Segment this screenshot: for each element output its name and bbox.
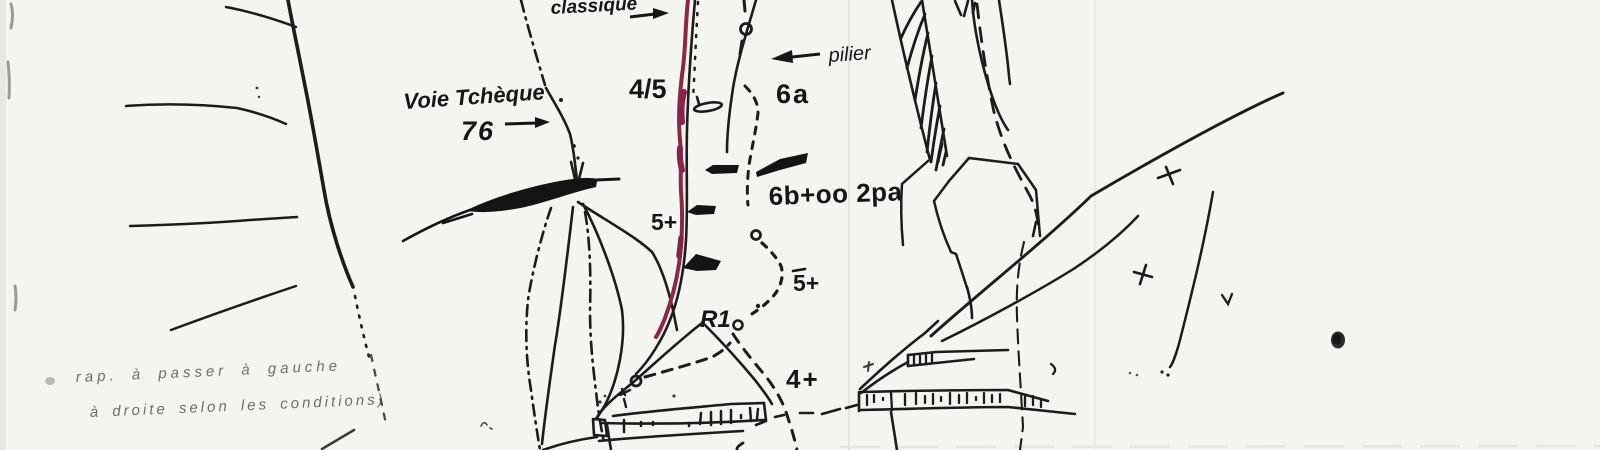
svg-text:6a: 6a xyxy=(776,79,810,109)
svg-text:R1: R1 xyxy=(700,306,731,333)
svg-text:4+: 4+ xyxy=(786,364,820,394)
svg-text:5+: 5+ xyxy=(651,209,677,235)
svg-text:4/5: 4/5 xyxy=(629,74,667,104)
svg-text:pilier: pilier xyxy=(827,42,873,67)
svg-text:5+: 5+ xyxy=(793,270,819,296)
svg-text:76: 76 xyxy=(461,116,495,146)
svg-text:6b+oo 2pa: 6b+oo 2pa xyxy=(768,176,903,211)
